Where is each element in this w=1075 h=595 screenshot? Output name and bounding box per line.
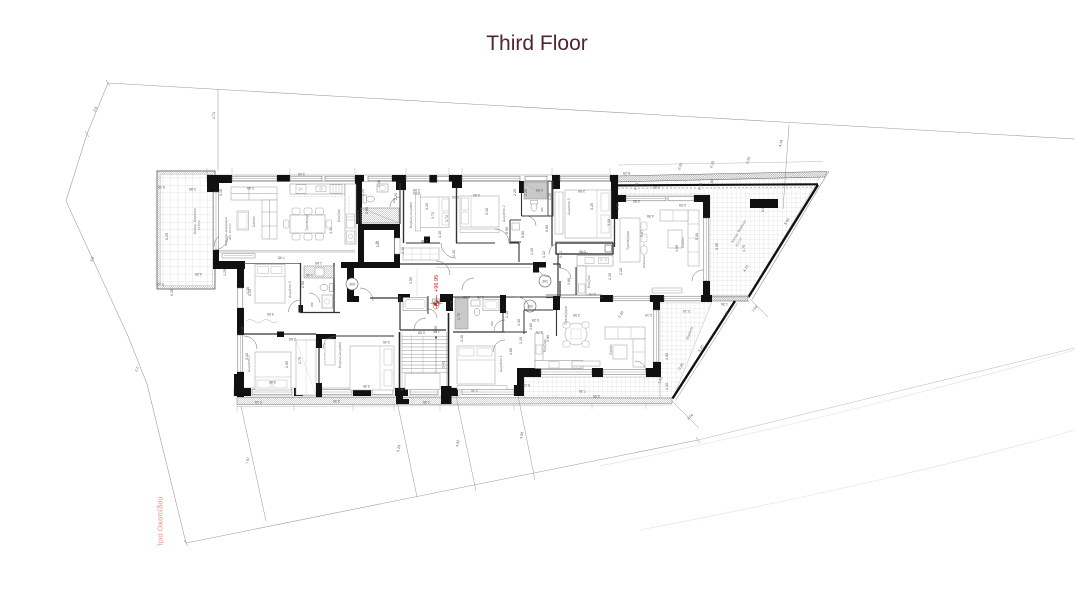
svg-text:2.65: 2.65 xyxy=(289,337,296,341)
svg-text:1.80: 1.80 xyxy=(241,326,245,333)
svg-text:6.25: 6.25 xyxy=(165,233,169,240)
svg-text:Τραπεζαρία: Τραπεζαρία xyxy=(626,231,630,250)
svg-text:3.10: 3.10 xyxy=(485,208,489,215)
svg-text:1.48: 1.48 xyxy=(377,180,381,187)
svg-text:Lift: Lift xyxy=(375,240,380,247)
svg-text:3.10: 3.10 xyxy=(460,335,464,342)
svg-text:Κουζίνα: Κουζίνα xyxy=(337,209,341,222)
svg-text:303 18.6 m²: 303 18.6 m² xyxy=(228,223,232,240)
svg-text:2.10: 2.10 xyxy=(645,313,652,317)
svg-text:Κουζίνα: Κουζίνα xyxy=(587,275,591,288)
svg-text:1.12: 1.12 xyxy=(559,251,563,258)
svg-text:2.50: 2.50 xyxy=(573,313,580,317)
svg-text:WC: WC xyxy=(490,320,494,326)
svg-text:3.20: 3.20 xyxy=(298,172,305,176)
svg-text:1.36: 1.36 xyxy=(721,302,728,306)
svg-text:4.14: 4.14 xyxy=(778,139,784,147)
svg-text:+96.95: +96.95 xyxy=(434,275,440,292)
svg-text:4.00: 4.00 xyxy=(665,353,669,360)
svg-text:303: 303 xyxy=(349,282,355,286)
svg-text:2.75: 2.75 xyxy=(477,295,484,299)
svg-text:Δωμάτιο 2: Δωμάτιο 2 xyxy=(502,205,506,222)
svg-text:Σαλόνι: Σαλόνι xyxy=(681,237,685,248)
svg-text:1.60: 1.60 xyxy=(315,261,322,265)
svg-text:1.60: 1.60 xyxy=(567,278,571,285)
svg-text:1.40: 1.40 xyxy=(401,247,405,254)
svg-text:2.2: 2.2 xyxy=(134,366,139,372)
svg-text:Τραπεζαρία: Τραπεζαρία xyxy=(564,306,568,325)
svg-text:2.82: 2.82 xyxy=(653,185,660,189)
svg-text:2.20: 2.20 xyxy=(548,193,552,200)
svg-text:0.15: 0.15 xyxy=(255,400,262,404)
svg-text:1.25: 1.25 xyxy=(223,269,227,276)
svg-text:1.12: 1.12 xyxy=(542,251,546,258)
svg-text:4.95: 4.95 xyxy=(647,214,654,218)
svg-text:0.80: 0.80 xyxy=(545,225,549,232)
svg-text:1.10: 1.10 xyxy=(452,250,456,257)
svg-text:3.72: 3.72 xyxy=(431,212,435,219)
svg-text:1.50: 1.50 xyxy=(409,277,413,284)
svg-text:1.30: 1.30 xyxy=(421,239,428,243)
svg-text:2.90: 2.90 xyxy=(578,189,585,193)
svg-text:302: 302 xyxy=(527,304,533,308)
svg-text:2.20: 2.20 xyxy=(619,268,623,275)
svg-text:2.90: 2.90 xyxy=(473,193,480,197)
svg-text:0.15: 0.15 xyxy=(170,289,174,296)
svg-text:0.25: 0.25 xyxy=(745,156,751,164)
svg-text:7.30: 7.30 xyxy=(579,389,586,393)
svg-text:1.10: 1.10 xyxy=(517,319,521,326)
svg-text:3.20: 3.20 xyxy=(590,203,594,210)
svg-text:2.05: 2.05 xyxy=(285,361,289,368)
svg-text:5.23: 5.23 xyxy=(396,445,401,453)
svg-text:4.95: 4.95 xyxy=(616,203,620,210)
svg-text:Σαλόνι: Σαλόνι xyxy=(252,216,256,227)
svg-text:3.10: 3.10 xyxy=(607,219,611,226)
svg-text:3.15: 3.15 xyxy=(245,353,249,360)
svg-text:2.10: 2.10 xyxy=(683,309,690,313)
svg-text:2.20: 2.20 xyxy=(519,337,523,344)
svg-text:5.30: 5.30 xyxy=(695,233,699,240)
svg-text:0.90: 0.90 xyxy=(365,207,369,214)
svg-text:2.20: 2.20 xyxy=(394,193,398,200)
svg-text:3.45: 3.45 xyxy=(383,340,390,344)
svg-text:3.41: 3.41 xyxy=(442,361,446,368)
svg-text:0.80: 0.80 xyxy=(521,231,525,238)
svg-text:7.07: 7.07 xyxy=(245,457,250,465)
svg-text:4.62: 4.62 xyxy=(455,440,460,448)
svg-text:3.90: 3.90 xyxy=(546,335,550,342)
svg-text:2.20: 2.20 xyxy=(513,189,517,196)
svg-text:2.90: 2.90 xyxy=(633,199,640,203)
svg-text:Τραπεζαρία: Τραπεζαρία xyxy=(305,212,309,231)
svg-text:1.60: 1.60 xyxy=(529,323,533,330)
svg-text:0.25: 0.25 xyxy=(677,162,683,170)
svg-text:Ίρια Οικοπέδου: Ίρια Οικοπέδου xyxy=(156,497,165,547)
svg-text:3.9: 3.9 xyxy=(89,256,95,262)
svg-text:4.25: 4.25 xyxy=(195,272,202,276)
svg-text:Κυρίως Δωμάτιο: Κυρίως Δωμάτιο xyxy=(338,342,342,368)
svg-text:Δωμάτιο 1: Δωμάτιο 1 xyxy=(499,355,503,372)
svg-text:4.74: 4.74 xyxy=(212,112,216,119)
svg-text:1.10: 1.10 xyxy=(438,231,442,238)
svg-text:2.20: 2.20 xyxy=(608,273,612,280)
svg-text:WC: WC xyxy=(540,206,544,212)
svg-text:1.75: 1.75 xyxy=(450,301,454,308)
svg-text:0.30: 0.30 xyxy=(617,310,624,318)
svg-text:0.25: 0.25 xyxy=(452,195,459,199)
svg-text:2.75: 2.75 xyxy=(298,357,302,364)
svg-text:2.20: 2.20 xyxy=(361,189,365,196)
svg-text:2.50: 2.50 xyxy=(301,281,305,288)
svg-text:Third Floor: Third Floor xyxy=(486,32,588,55)
svg-text:2.05: 2.05 xyxy=(679,203,686,207)
svg-text:5.95: 5.95 xyxy=(715,243,719,250)
svg-text:Δωμάτιο 3: Δωμάτιο 3 xyxy=(567,198,571,215)
svg-text:4.75: 4.75 xyxy=(742,245,746,252)
svg-text:0.99: 0.99 xyxy=(536,188,543,192)
svg-text:6.25: 6.25 xyxy=(623,171,630,175)
svg-text:3.70: 3.70 xyxy=(536,330,543,334)
svg-text:3.40: 3.40 xyxy=(269,380,276,384)
svg-text:3.20: 3.20 xyxy=(425,203,429,210)
svg-text:301: 301 xyxy=(542,279,548,283)
svg-text:2.45: 2.45 xyxy=(247,186,254,190)
svg-text:0.90: 0.90 xyxy=(505,227,509,234)
svg-text:1.10: 1.10 xyxy=(665,383,669,390)
svg-text:3.00: 3.00 xyxy=(267,312,274,316)
svg-text:3.30: 3.30 xyxy=(363,384,370,388)
svg-text:3.72: 3.72 xyxy=(445,215,449,222)
svg-text:2.20: 2.20 xyxy=(524,189,528,196)
svg-text:2.05: 2.05 xyxy=(463,295,470,299)
svg-text:2.6: 2.6 xyxy=(92,106,98,112)
svg-text:2.50: 2.50 xyxy=(418,331,425,335)
svg-text:7.45: 7.45 xyxy=(278,256,285,260)
svg-text:WC: WC xyxy=(310,301,314,307)
svg-text:0.15: 0.15 xyxy=(158,185,165,189)
svg-text:0.15: 0.15 xyxy=(219,189,223,196)
svg-text:0.25: 0.25 xyxy=(532,318,539,322)
svg-text:0.25: 0.25 xyxy=(709,160,715,168)
svg-text:2.00: 2.00 xyxy=(413,191,420,195)
svg-text:2.04: 2.04 xyxy=(686,413,694,421)
svg-text:3.10: 3.10 xyxy=(246,287,250,294)
svg-text:2.07: 2.07 xyxy=(640,230,644,237)
svg-text:4.50: 4.50 xyxy=(519,432,524,440)
svg-text:1.90: 1.90 xyxy=(423,400,430,404)
svg-text:1.10: 1.10 xyxy=(530,248,534,255)
svg-text:Σαλόνι: Σαλόνι xyxy=(609,344,613,355)
svg-text:2.40: 2.40 xyxy=(581,251,588,255)
svg-text:0.15: 0.15 xyxy=(523,383,530,387)
svg-text:1.40: 1.40 xyxy=(306,273,313,277)
svg-text:0.15: 0.15 xyxy=(157,282,164,286)
svg-text:2.50: 2.50 xyxy=(593,394,600,398)
svg-text:3.70: 3.70 xyxy=(589,292,596,296)
svg-text:11.8 m²: 11.8 m² xyxy=(197,220,201,230)
svg-text:3.30: 3.30 xyxy=(333,399,340,403)
svg-text:1.75: 1.75 xyxy=(457,313,461,320)
svg-text:2.50: 2.50 xyxy=(433,329,440,333)
svg-text:Δωμάτιο 3: Δωμάτιο 3 xyxy=(288,281,292,298)
svg-text:2.85: 2.85 xyxy=(189,187,196,191)
svg-text:Κυρίως Δωμάτιο: Κυρίως Δωμάτιο xyxy=(409,202,413,228)
svg-text:4.00: 4.00 xyxy=(675,245,679,252)
svg-text:1.13: 1.13 xyxy=(505,311,509,318)
svg-text:1.80: 1.80 xyxy=(509,348,513,355)
